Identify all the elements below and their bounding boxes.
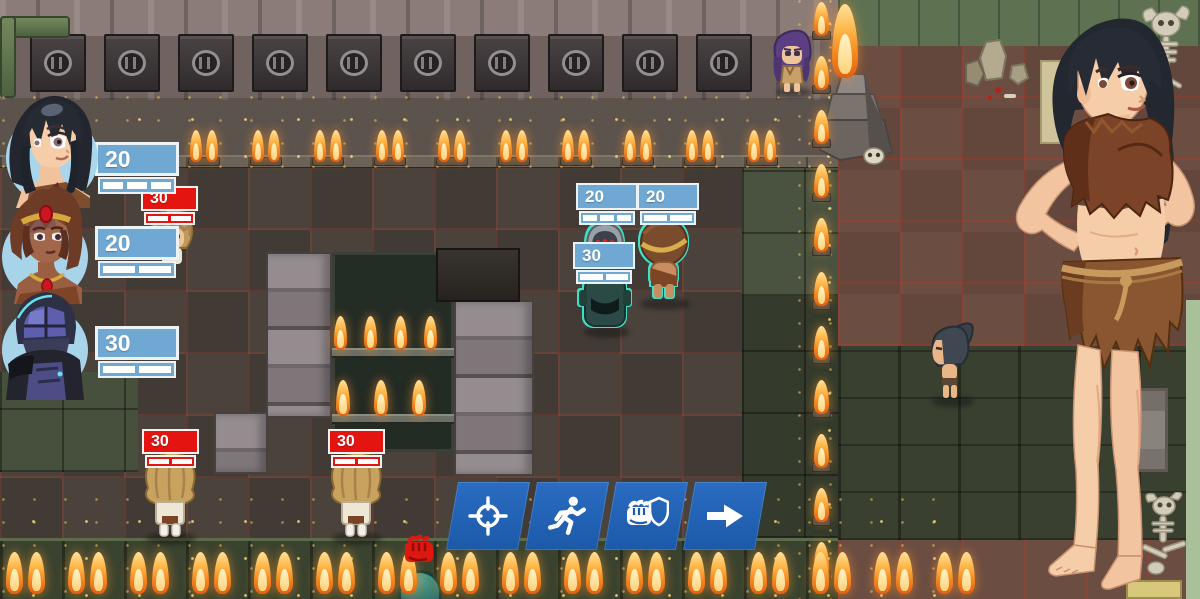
machine-vent [252,34,308,92]
machine-vent [326,34,382,92]
target-button[interactable] [452,482,524,550]
end-turn-button[interactable] [689,482,761,550]
machine-vent [474,34,530,92]
fist-shield-icon [623,495,669,537]
game-screen: 30 20 20 30 20 20 30 30 30 [0,0,1200,599]
crosshair-icon [468,496,508,536]
unit-purple-hair[interactable] [768,26,816,94]
arrow-right-icon [705,501,745,531]
fist-icon [402,534,436,566]
stone-pillar [266,252,332,418]
health-bar-drone-lower: 30 [573,242,635,284]
hp-value: 30 [337,433,355,451]
hp-value: 20 [105,230,131,257]
health-bar-enemy-left: 30 [142,429,199,468]
attack-button[interactable] [610,482,682,550]
health-bar-enemy-mid: 30 [328,429,385,468]
health-bar-drone: 20 [576,183,638,225]
unit-native[interactable] [634,214,694,306]
fire-ledge [332,348,454,358]
hp-value: 20 [646,187,665,207]
run-icon [546,495,588,537]
machine-vent [30,34,86,92]
machine-vent [622,34,678,92]
machine-vent [400,34,456,92]
portrait-armored-trooper-icon [0,278,96,400]
hp-value: 30 [582,246,601,266]
dark-block [436,248,520,302]
health-bar-native: 20 [637,183,699,225]
cave-girl-character-art [1000,0,1200,599]
machine-block-row [0,34,838,94]
hp-value: 30 [151,433,169,451]
hp-value: 30 [105,330,131,357]
party-portrait-3[interactable] [0,278,96,400]
hp-value: 20 [105,146,131,173]
machine-vent [178,34,234,92]
stone-pillar [214,412,268,474]
machine-vent [548,34,604,92]
stone-pillar [454,300,534,476]
machine-vent [104,34,160,92]
fire-ledge [332,414,454,424]
machine-vent [696,34,752,92]
health-bar-party-2: 20 [95,226,179,278]
unit-ponytail[interactable] [924,318,976,404]
move-button[interactable] [531,482,603,550]
hp-value: 20 [585,187,604,207]
health-bar-party-3: 30 [95,326,179,378]
action-bar [452,482,772,552]
health-bar-party-1: 20 [95,142,179,194]
